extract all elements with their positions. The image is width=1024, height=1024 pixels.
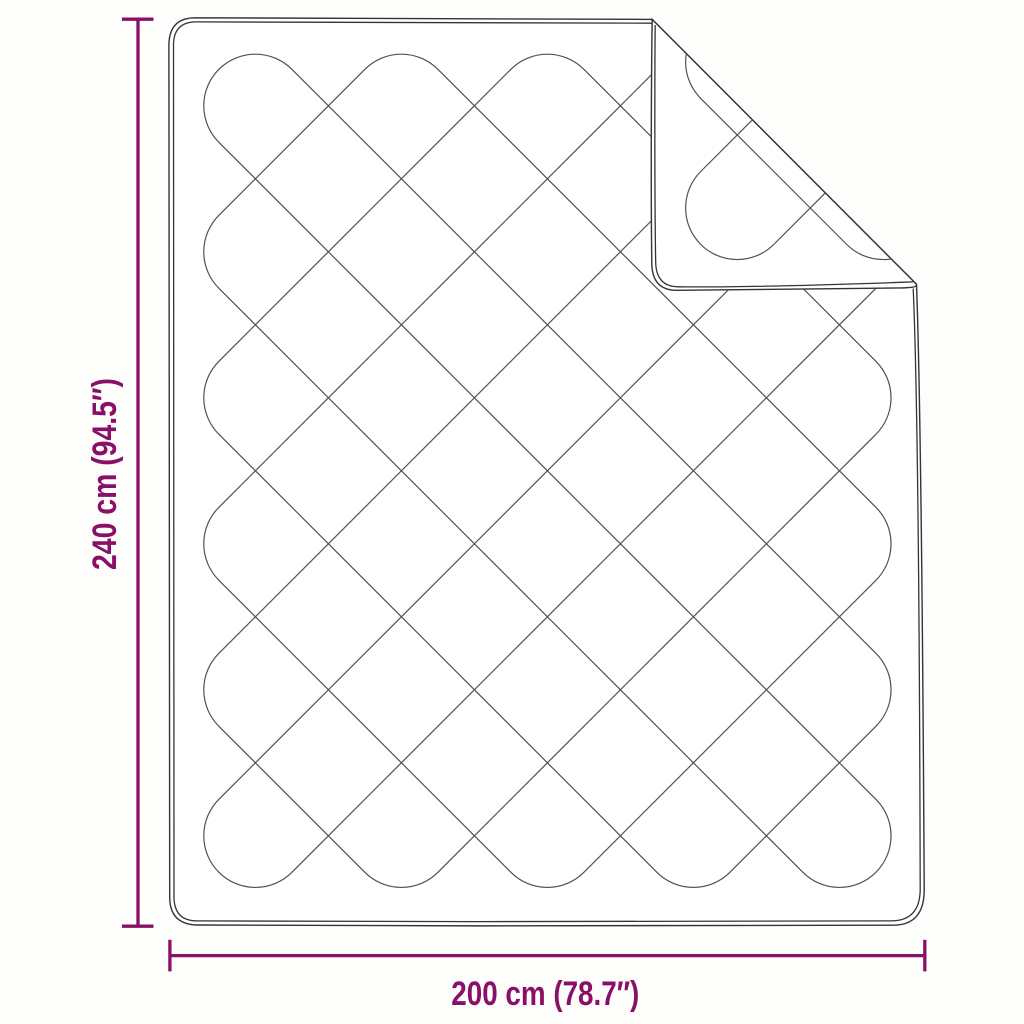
svg-text:240 cm (94.5″): 240 cm (94.5″): [86, 378, 124, 570]
svg-text:200 cm (78.7″): 200 cm (78.7″): [451, 975, 639, 1013]
